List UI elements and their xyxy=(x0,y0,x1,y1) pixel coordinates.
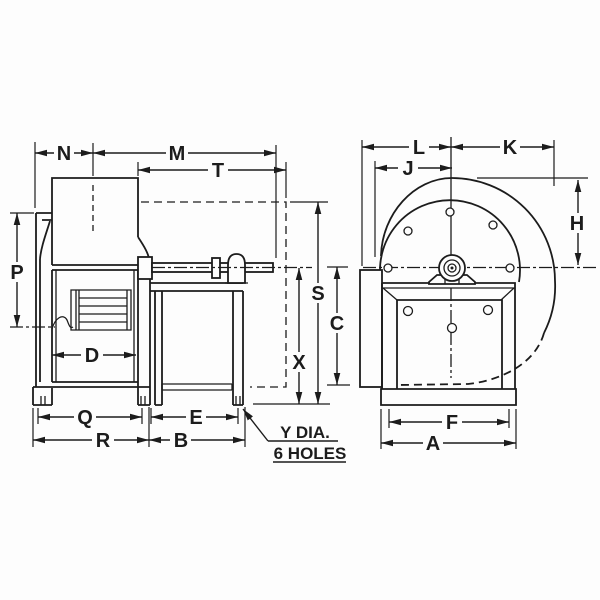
dim-label-b: B xyxy=(174,430,188,452)
technical-drawing-canvas: N M T P D Q R E B S X C L K J H F A Y DI… xyxy=(0,0,600,600)
dimension-labels: N M T P D Q R E B S X C L K J H F A xyxy=(10,137,584,455)
housing xyxy=(33,178,150,405)
inlet-louvers xyxy=(10,290,131,330)
hole-callout: Y DIA. 6 HOLES xyxy=(243,409,346,463)
dim-label-x: X xyxy=(292,352,306,374)
dim-label-r: R xyxy=(96,430,111,452)
callout-line2: 6 HOLES xyxy=(274,444,347,463)
blower-dimension-drawing: N M T P D Q R E B S X C L K J H F A Y DI… xyxy=(0,0,600,600)
dim-label-l: L xyxy=(413,137,425,159)
shaft-hub xyxy=(138,257,152,279)
dim-label-j: J xyxy=(402,158,413,180)
side-view xyxy=(10,178,312,405)
dim-label-d: D xyxy=(85,345,99,367)
pedestal-panel-holes xyxy=(404,306,493,333)
scroll-hidden-arc xyxy=(398,333,544,385)
bearing-front xyxy=(429,255,475,284)
dim-label-e: E xyxy=(189,407,202,429)
mounting-feet xyxy=(33,387,150,405)
pedestal-box xyxy=(382,283,515,389)
dim-label-t: T xyxy=(212,160,224,182)
dim-label-s: S xyxy=(311,283,324,305)
dim-label-f: F xyxy=(446,412,458,434)
front-view xyxy=(360,137,598,405)
discharge-flange xyxy=(360,270,382,387)
dim-label-q: Q xyxy=(77,407,93,429)
dim-label-p: P xyxy=(10,262,23,284)
dim-label-h: H xyxy=(570,213,584,235)
dim-label-n: N xyxy=(57,143,71,165)
bearing-pedestal xyxy=(150,283,243,405)
dim-label-m: M xyxy=(169,143,186,165)
callout-line1: Y DIA. xyxy=(280,423,330,442)
pillow-block-bearing xyxy=(228,254,245,283)
dim-label-a: A xyxy=(426,433,440,455)
callout-leader xyxy=(243,409,268,441)
dim-label-c: C xyxy=(330,313,344,335)
dim-label-k: K xyxy=(503,137,518,159)
base-plate xyxy=(381,389,516,405)
dimension-lines xyxy=(17,147,578,443)
